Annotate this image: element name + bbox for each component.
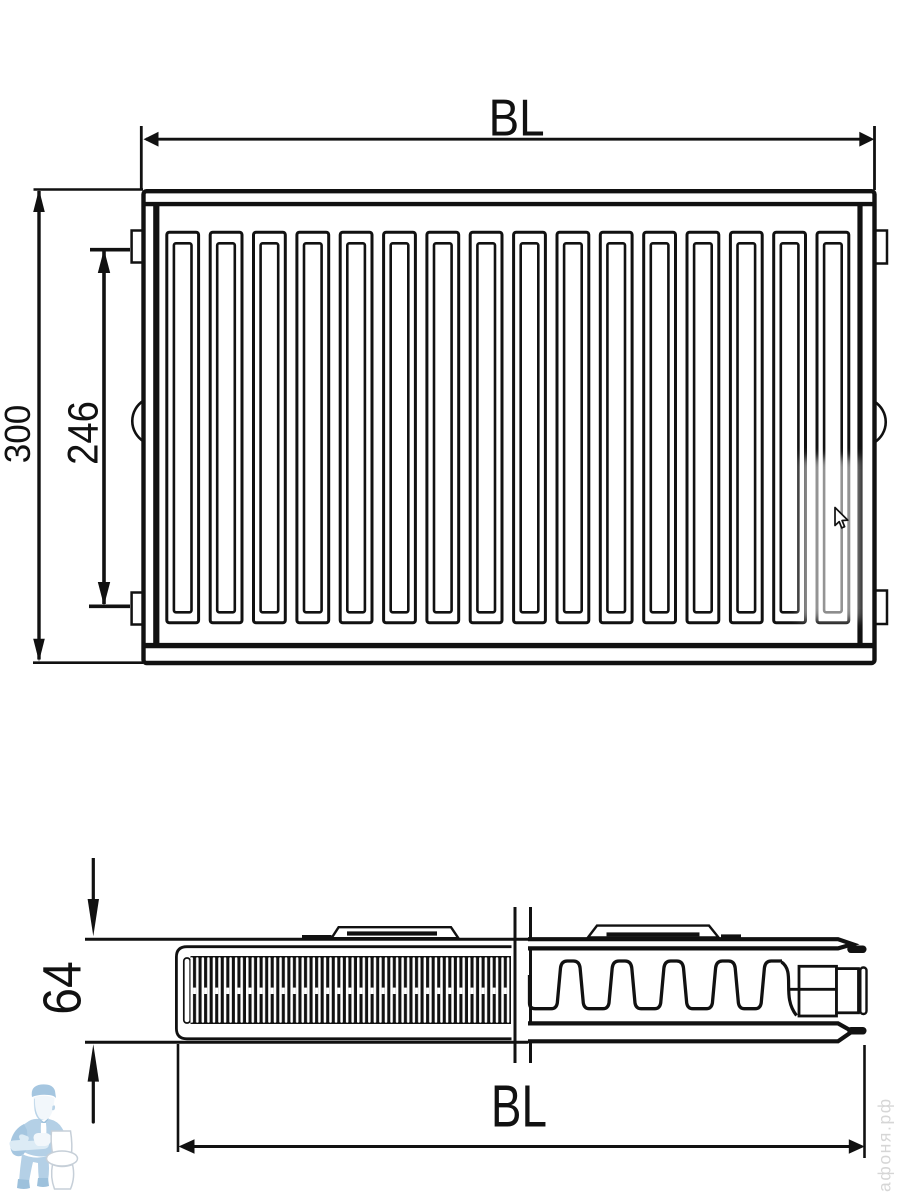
svg-text:246: 246 [58, 401, 107, 465]
svg-text:300: 300 [0, 405, 38, 463]
svg-text:BL: BL [491, 1074, 547, 1140]
svg-text:афоня.рф: афоня.рф [875, 1097, 895, 1192]
svg-text:64: 64 [32, 961, 92, 1014]
